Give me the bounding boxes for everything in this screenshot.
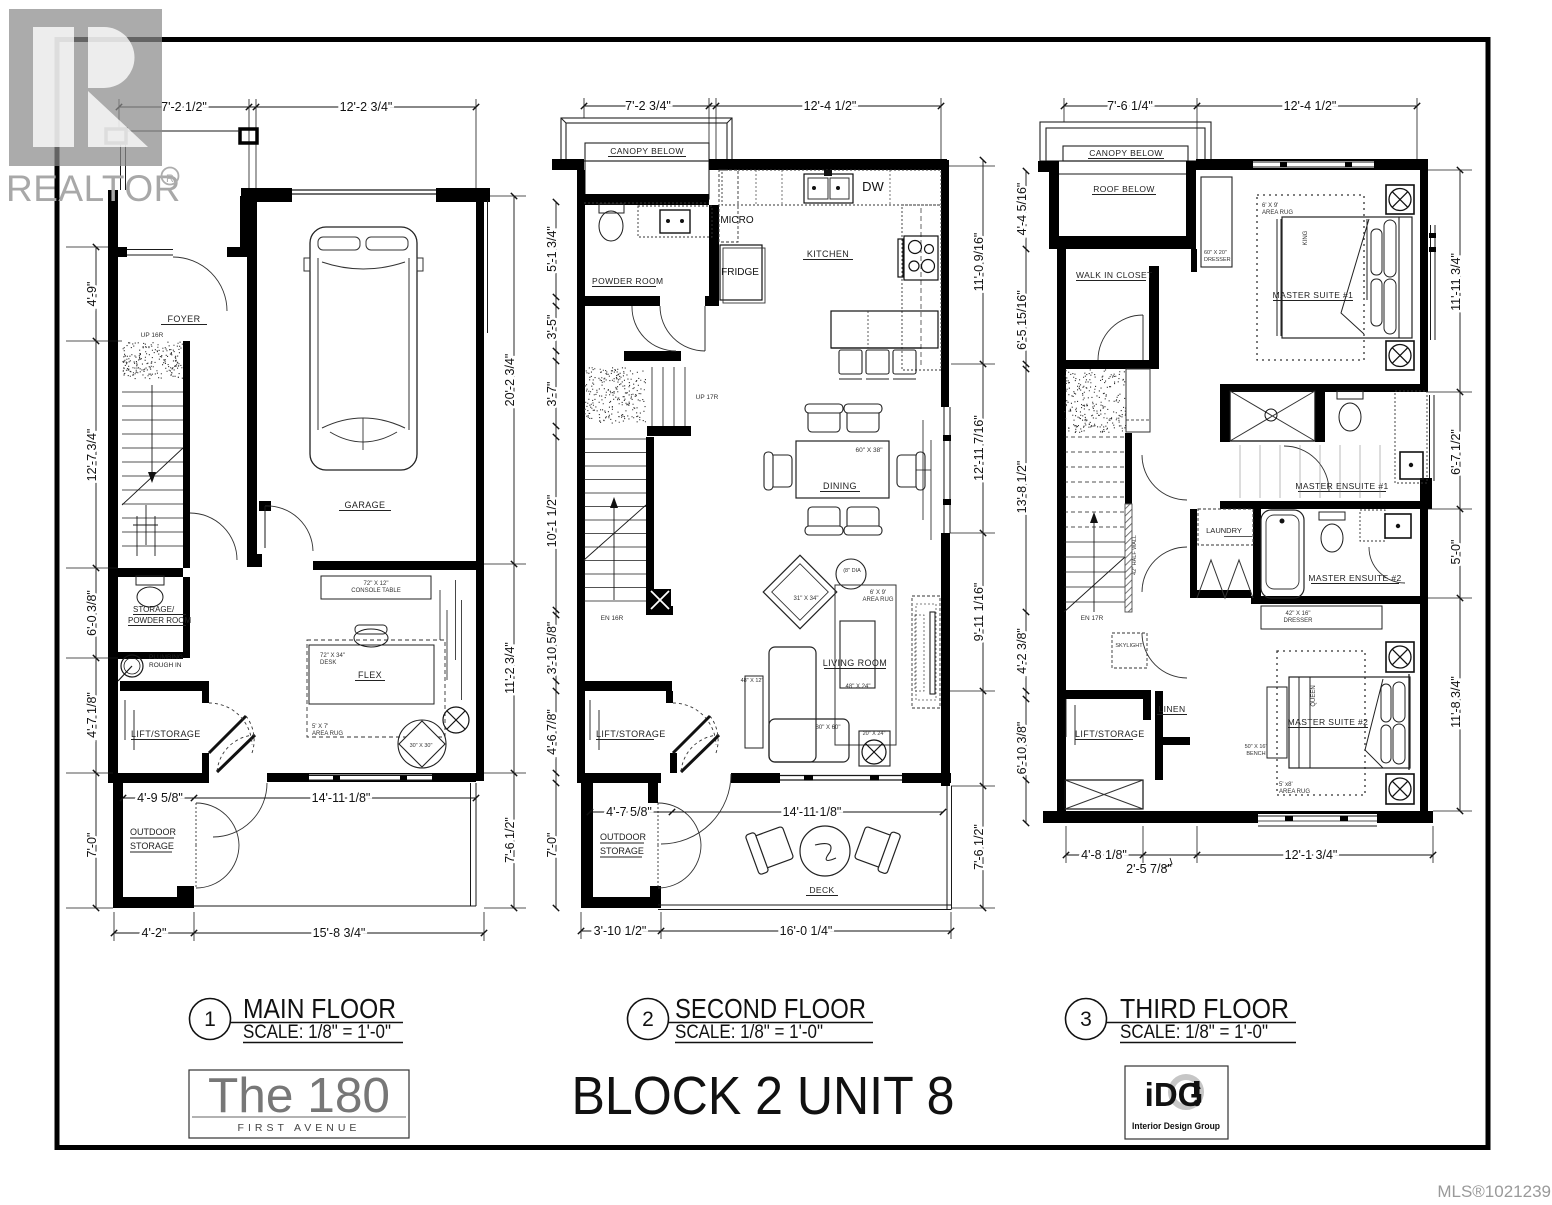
svg-text:MICRO: MICRO	[720, 215, 754, 226]
svg-text:MASTER ENSUITE #2: MASTER ENSUITE #2	[1308, 573, 1401, 583]
svg-text:11'-0 9/16": 11'-0 9/16"	[972, 233, 986, 292]
svg-text:3'-10 1/2": 3'-10 1/2"	[594, 924, 647, 938]
svg-text:7'-0": 7'-0"	[545, 833, 559, 858]
svg-text:20" X 24": 20" X 24"	[863, 731, 886, 737]
svg-text:POWDER ROOM: POWDER ROOM	[592, 276, 663, 286]
svg-text:12'-4 1/2": 12'-4 1/2"	[1284, 99, 1337, 113]
svg-text:7'-6 1/4": 7'-6 1/4"	[1107, 99, 1153, 113]
svg-text:4'-9 5/8": 4'-9 5/8"	[137, 791, 183, 805]
svg-text:GARAGE: GARAGE	[345, 500, 386, 510]
svg-text:72" X 12": 72" X 12"	[364, 581, 389, 587]
svg-text:1: 1	[204, 1008, 216, 1031]
svg-text:FRIDGE: FRIDGE	[721, 267, 759, 278]
svg-text:FLEX: FLEX	[358, 670, 382, 680]
svg-text:KING: KING	[1303, 230, 1309, 245]
svg-text:12'-11 7/16": 12'-11 7/16"	[972, 415, 986, 481]
svg-text:6' X 9': 6' X 9'	[870, 590, 886, 596]
svg-text:CONSOLE TABLE: CONSOLE TABLE	[351, 588, 400, 594]
svg-text:PLUMBING: PLUMBING	[149, 654, 183, 661]
svg-text:MASTER SUITE #1: MASTER SUITE #1	[1273, 290, 1354, 300]
svg-text:11'-2 3/4": 11'-2 3/4"	[503, 642, 517, 694]
svg-text:DINING: DINING	[823, 481, 857, 491]
svg-text:DRESSER: DRESSER	[1204, 257, 1231, 263]
svg-text:ROUGH IN: ROUGH IN	[149, 662, 182, 669]
svg-text:7'-2 1/2": 7'-2 1/2"	[161, 100, 207, 114]
svg-text:48" X 24": 48" X 24"	[846, 684, 871, 690]
svg-text:LIVING ROOM: LIVING ROOM	[823, 658, 887, 668]
svg-text:10'-1 1/2": 10'-1 1/2"	[545, 495, 559, 548]
svg-text:R: R	[166, 173, 174, 185]
svg-text:(8" DIA: (8" DIA	[843, 568, 861, 574]
svg-text:3'-7": 3'-7"	[545, 382, 559, 407]
svg-text:AREA RUG: AREA RUG	[1279, 789, 1310, 795]
svg-text:11'-8 3/4": 11'-8 3/4"	[1449, 676, 1463, 728]
svg-text:LINEN: LINEN	[1158, 704, 1185, 714]
svg-text:4'-7 5/8": 4'-7 5/8"	[606, 805, 652, 819]
svg-text:STORAGE/: STORAGE/	[133, 605, 175, 614]
svg-text:CANOPY BELOW: CANOPY BELOW	[610, 146, 684, 156]
svg-text:3: 3	[1080, 1008, 1092, 1031]
svg-text:7'-6 1/2": 7'-6 1/2"	[503, 817, 517, 863]
svg-text:REALTOR: REALTOR	[6, 168, 181, 209]
svg-text:7'-0": 7'-0"	[85, 833, 99, 858]
svg-text:FOYER: FOYER	[167, 314, 200, 324]
svg-text:AREA RUG: AREA RUG	[862, 597, 893, 603]
svg-text:5' X 7': 5' X 7'	[312, 724, 328, 730]
svg-text:OUTDOOR: OUTDOOR	[130, 827, 176, 837]
svg-text:30" X 30": 30" X 30"	[410, 743, 433, 749]
svg-text:48" X 12": 48" X 12"	[741, 678, 764, 684]
svg-text:6'-0 3/8": 6'-0 3/8"	[85, 590, 99, 636]
svg-text:DECK: DECK	[809, 885, 834, 895]
svg-text:CANOPY BELOW: CANOPY BELOW	[1089, 148, 1163, 158]
svg-text:FIRST AVENUE: FIRST AVENUE	[238, 1122, 361, 1134]
svg-text:14'-11 1/8": 14'-11 1/8"	[783, 805, 842, 819]
svg-text:5'-1 3/4": 5'-1 3/4"	[545, 226, 559, 272]
svg-text:SCALE: 1/8" = 1'-0": SCALE: 1/8" = 1'-0"	[675, 1021, 823, 1043]
svg-text:11'-11 3/4": 11'-11 3/4"	[1449, 253, 1463, 311]
svg-text:SECOND FLOOR: SECOND FLOOR	[675, 993, 866, 1024]
svg-text:6'-10 3/8": 6'-10 3/8"	[1015, 722, 1029, 775]
svg-text:The 180: The 180	[208, 1069, 390, 1123]
svg-text:6' X 9': 6' X 9'	[1262, 203, 1278, 209]
svg-text:UP 16R: UP 16R	[141, 332, 164, 339]
svg-text:6'-7 1/2": 6'-7 1/2"	[1449, 429, 1463, 475]
svg-text:7'-6 1/2": 7'-6 1/2"	[972, 824, 986, 870]
svg-text:20'-2 3/4": 20'-2 3/4"	[503, 354, 517, 407]
svg-text:EN 16R: EN 16R	[601, 615, 624, 622]
svg-text:31" X 34": 31" X 34"	[794, 596, 819, 602]
svg-text:6'-5 15/16": 6'-5 15/16"	[1015, 290, 1029, 350]
svg-text:12'-1 3/4": 12'-1 3/4"	[1285, 848, 1338, 862]
svg-text:AREA RUG: AREA RUG	[312, 731, 343, 737]
svg-text:15'-8 3/4": 15'-8 3/4"	[313, 926, 366, 940]
svg-text:BLOCK 2 UNIT 8: BLOCK 2 UNIT 8	[572, 1066, 955, 1126]
svg-text:MASTER ENSUITE #1: MASTER ENSUITE #1	[1295, 481, 1388, 491]
svg-text:LIFT/STORAGE: LIFT/STORAGE	[1075, 729, 1145, 739]
svg-text:THIRD FLOOR: THIRD FLOOR	[1120, 993, 1289, 1024]
svg-text:12'-7 3/4": 12'-7 3/4"	[85, 429, 99, 482]
svg-text:LIFT/STORAGE: LIFT/STORAGE	[596, 729, 666, 739]
svg-text:SCALE: 1/8" = 1'-0": SCALE: 1/8" = 1'-0"	[243, 1021, 391, 1043]
svg-text:42" X 16": 42" X 16"	[1286, 611, 1311, 617]
svg-text:60" X 20": 60" X 20"	[1204, 250, 1227, 256]
svg-text:60" X 38": 60" X 38"	[855, 447, 883, 454]
svg-text:50" X 16": 50" X 16"	[1245, 744, 1268, 750]
svg-text:LAUNDRY: LAUNDRY	[1206, 526, 1242, 535]
svg-text:9'-11 1/16": 9'-11 1/16"	[972, 583, 986, 642]
svg-text:4'-2": 4'-2"	[142, 926, 167, 940]
svg-text:WALK IN CLOSET: WALK IN CLOSET	[1076, 270, 1153, 280]
svg-text:13'-8 1/2": 13'-8 1/2"	[1015, 461, 1029, 514]
svg-text:SKYLIGHT: SKYLIGHT	[1115, 643, 1143, 649]
svg-text:3'-10 5/8": 3'-10 5/8"	[545, 622, 559, 675]
svg-text:4'-9": 4'-9"	[85, 282, 99, 307]
svg-text:STORAGE: STORAGE	[130, 841, 174, 851]
svg-text:12'-4 1/2": 12'-4 1/2"	[804, 99, 857, 113]
svg-text:7'-2 3/4": 7'-2 3/4"	[625, 99, 671, 113]
svg-text:KITCHEN: KITCHEN	[807, 249, 849, 259]
svg-text:42" HALF WALL: 42" HALF WALL	[1132, 535, 1138, 575]
svg-text:DW: DW	[862, 179, 884, 194]
svg-text:POWDER ROOM: POWDER ROOM	[128, 616, 191, 625]
svg-text:14'-11 1/8": 14'-11 1/8"	[312, 791, 371, 805]
svg-text:2: 2	[642, 1008, 654, 1031]
svg-text:5' x8': 5' x8'	[1279, 782, 1293, 788]
svg-text:3'-5": 3'-5"	[545, 315, 559, 340]
svg-text:5'-0": 5'-0"	[1449, 540, 1463, 565]
svg-text:STORAGE: STORAGE	[600, 846, 644, 856]
svg-text:4'-6 7/8": 4'-6 7/8"	[545, 709, 559, 755]
svg-text:ROOF BELOW: ROOF BELOW	[1093, 184, 1155, 194]
svg-text:MASTER SUITE #2: MASTER SUITE #2	[1288, 717, 1369, 727]
svg-text:MAIN FLOOR: MAIN FLOOR	[243, 993, 396, 1024]
svg-text:4'-2 3/8": 4'-2 3/8"	[1015, 628, 1029, 674]
svg-text:4'-4 5/16": 4'-4 5/16"	[1015, 183, 1029, 236]
svg-text:4'-8 1/8": 4'-8 1/8"	[1081, 848, 1127, 862]
svg-text:QUEEN: QUEEN	[1311, 685, 1317, 706]
svg-text:72" X 34": 72" X 34"	[320, 653, 345, 659]
svg-text:BENCH: BENCH	[1246, 751, 1265, 757]
svg-text:UP 17R: UP 17R	[696, 394, 719, 401]
svg-text:MLS®1021239: MLS®1021239	[1437, 1182, 1551, 1200]
svg-text:AREA RUG: AREA RUG	[1262, 210, 1293, 216]
svg-text:2'-5 7/8": 2'-5 7/8"	[1126, 862, 1172, 876]
svg-text:16'-0 1/4": 16'-0 1/4"	[780, 924, 833, 938]
svg-text:Interior Design Group: Interior Design Group	[1132, 1121, 1220, 1132]
svg-text:DRESSER: DRESSER	[1283, 618, 1313, 624]
svg-text:80" X 60": 80" X 60"	[816, 725, 841, 731]
svg-text:DESK: DESK	[320, 660, 336, 666]
svg-text:SCALE: 1/8" = 1'-0": SCALE: 1/8" = 1'-0"	[1120, 1021, 1268, 1043]
svg-text:LIFT/STORAGE: LIFT/STORAGE	[131, 729, 201, 739]
svg-text:4'-7 1/8": 4'-7 1/8"	[85, 692, 99, 738]
svg-text:12'-2 3/4": 12'-2 3/4"	[340, 100, 393, 114]
svg-text:OUTDOOR: OUTDOOR	[600, 832, 646, 842]
svg-text:EN 17R: EN 17R	[1081, 615, 1104, 622]
